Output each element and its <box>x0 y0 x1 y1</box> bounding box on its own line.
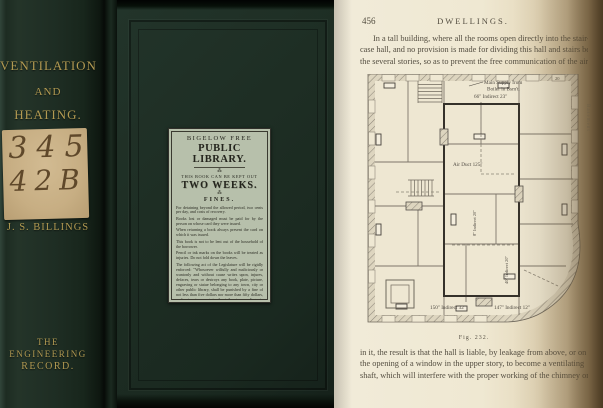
running-header: DWELLINGS. <box>360 16 586 26</box>
fines-rule: This book is not to be lent out of the h… <box>176 239 263 249</box>
library-name-line1: BIGELOW FREE <box>176 135 263 142</box>
text-line: in it, the result is that the hall is li… <box>360 347 588 358</box>
plan-annotation-indirect-bl: 150" Indirect 32" <box>430 305 466 311</box>
spine-title-line: AND <box>0 86 96 98</box>
book-front-cover: BIGELOW FREE PUBLIC LIBRARY. ⁂ THIS BOOK… <box>117 0 334 408</box>
plan-annotation-rotated-right: 40" Indirect 20" <box>504 256 509 284</box>
fines-rule: For detaining beyond the allowed period,… <box>176 205 263 215</box>
spine-title-line: VENTILATION <box>0 58 96 74</box>
label-ornament: ⁂ <box>176 169 263 173</box>
text-line: the several stories, so as to prevent th… <box>360 56 588 67</box>
fines-rule: When returning a book always present the… <box>176 227 263 237</box>
fines-rule: Pencil or ink marks on the books will be… <box>176 250 263 260</box>
floor-plan-figure: Main Supply from Boiler in Bsm't. 66" In… <box>356 74 596 334</box>
spine-author: J. S. BILLINGS <box>0 222 96 233</box>
library-name-line2: PUBLIC LIBRARY. <box>176 143 263 165</box>
plan-annotation-basement: Basement <box>585 104 590 132</box>
text-line: In a tall building, where all the rooms … <box>360 33 588 44</box>
plan-annotation-main-supply-2: Boiler in Bsm't. <box>487 87 520 93</box>
plan-annotation-indirect-top: 66" Indirect 23" <box>474 94 507 100</box>
plan-annotation-indirect-br: 147" Indirect 12" <box>494 305 530 311</box>
photo-of-book: VENTILATION AND HEATING. 345 42B J. S. B… <box>0 0 603 408</box>
book-spine: VENTILATION AND HEATING. 345 42B J. S. B… <box>0 0 104 408</box>
spine-publisher-line: ENGINEERING <box>0 349 96 359</box>
label-ornament: ⁂ <box>176 191 263 195</box>
call-number-top: 345 <box>2 128 88 168</box>
call-number-bottom: 42B <box>3 165 89 195</box>
statute-paragraph: The following act of the Legislature wil… <box>176 262 263 300</box>
figure-caption: Fig. 232. <box>360 335 588 341</box>
plan-annotation-main-supply-1: Main Supply from <box>484 79 522 86</box>
spine-cover-hinge <box>104 0 117 408</box>
spine-publisher-line: THE <box>0 337 96 347</box>
paragraph-top: In a tall building, where all the rooms … <box>360 33 588 67</box>
library-label-inner: BIGELOW FREE PUBLIC LIBRARY. ⁂ THIS BOOK… <box>171 131 268 300</box>
text-line: the opening of a window in the upper sto… <box>360 358 588 369</box>
plan-annotation-rotated-left: 8" Indirect 20" <box>472 210 477 236</box>
library-label: BIGELOW FREE PUBLIC LIBRARY. ⁂ THIS BOOK… <box>168 128 271 303</box>
call-number-label: 345 42B <box>2 128 89 220</box>
plan-annotation-register: 20 <box>555 76 560 81</box>
fines-heading: FINES. <box>176 197 263 203</box>
open-book-page: 456 DWELLINGS. In a tall building, where… <box>334 0 603 408</box>
fines-rule: Books lost or damaged must be paid for b… <box>176 216 263 226</box>
paragraph-bottom: in it, the result is that the hall is li… <box>360 347 588 381</box>
keep-out-line: THIS BOOK CAN BE KEPT OUT <box>176 174 263 179</box>
spine-publisher-line: RECORD. <box>0 361 96 372</box>
spine-title-line: HEATING. <box>0 107 96 123</box>
plan-annotation-air-duct: Air Duct 125" <box>453 162 483 168</box>
text-line: case hall, and no provision is made for … <box>360 44 588 55</box>
text-line: shaft, which will interfere with the pro… <box>360 370 588 381</box>
